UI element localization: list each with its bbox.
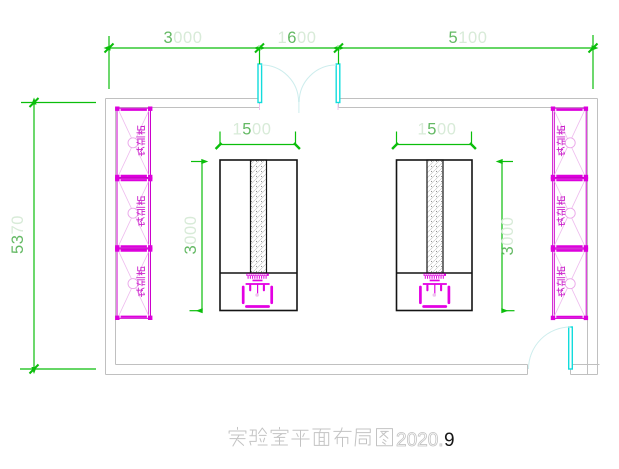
svg-text:1500: 1500 bbox=[418, 121, 457, 139]
svg-text:2020.: 2020. bbox=[396, 430, 444, 451]
svg-text:1600: 1600 bbox=[278, 29, 317, 47]
svg-text:9: 9 bbox=[444, 430, 455, 451]
svg-text:5100: 5100 bbox=[449, 29, 488, 47]
svg-text:5370: 5370 bbox=[9, 215, 27, 254]
svg-text:3000: 3000 bbox=[164, 29, 203, 47]
svg-text:3000: 3000 bbox=[499, 217, 517, 256]
svg-text:3000: 3000 bbox=[182, 216, 200, 255]
svg-text:1500: 1500 bbox=[233, 121, 272, 139]
